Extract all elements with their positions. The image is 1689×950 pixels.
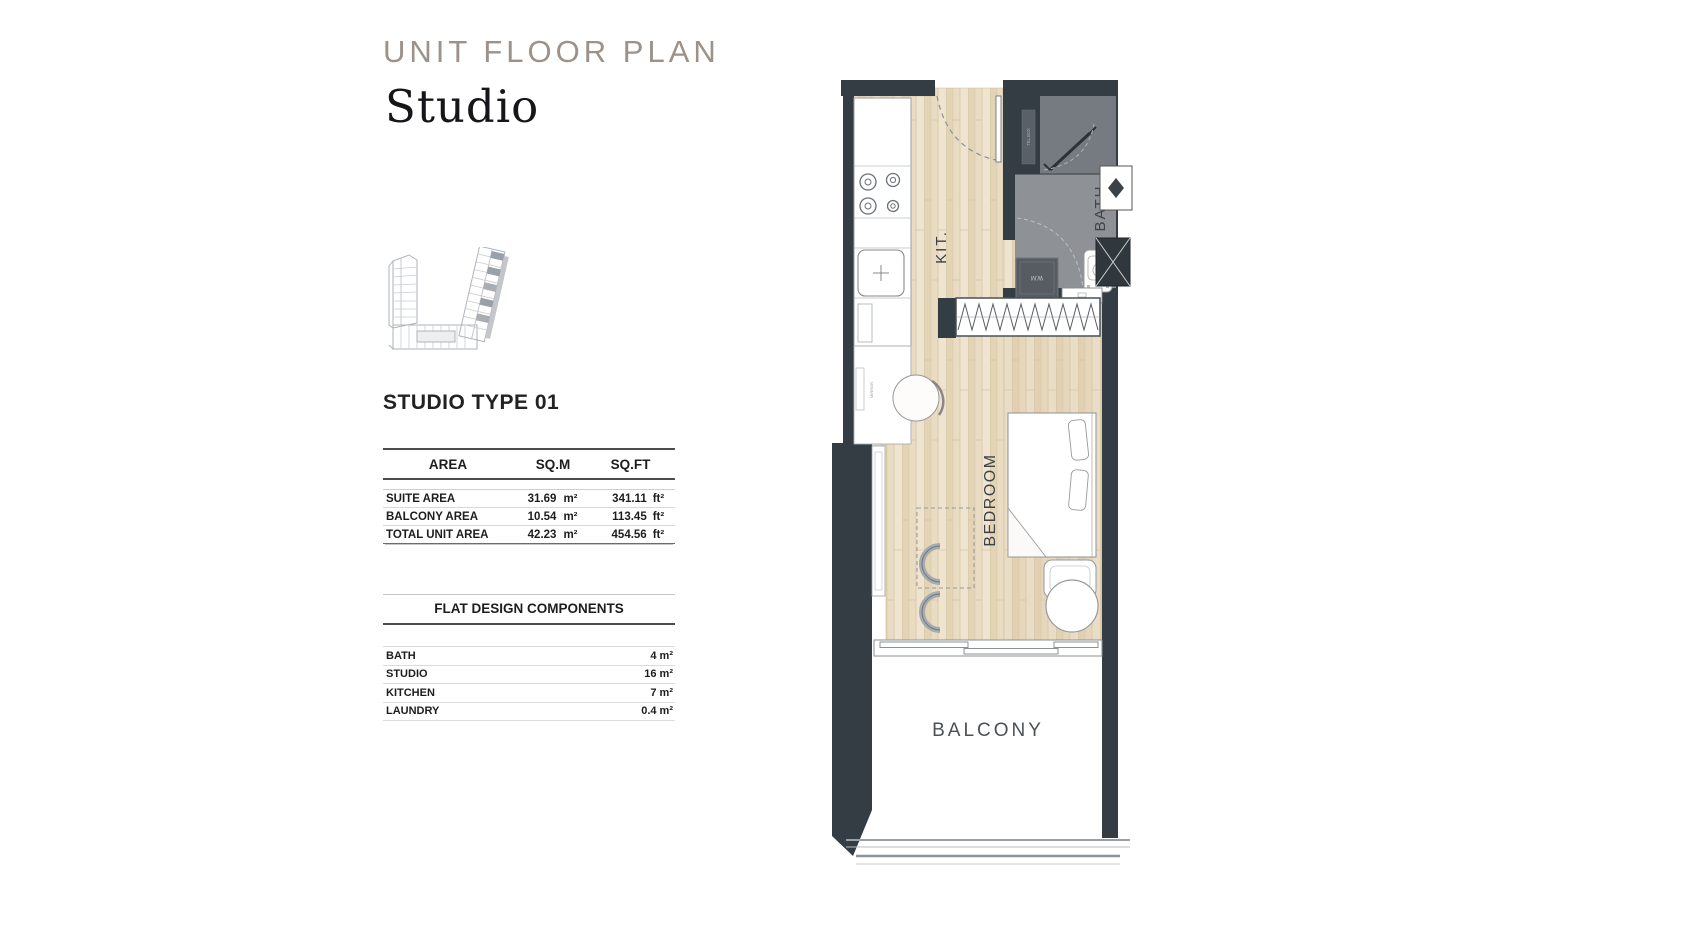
row-label: SUITE AREA bbox=[383, 493, 512, 505]
col-area: AREA bbox=[383, 457, 513, 472]
row-sqft: 113.45 bbox=[596, 511, 646, 523]
round-table bbox=[1046, 580, 1098, 632]
page-title: UNIT FLOOR PLAN bbox=[383, 34, 720, 70]
row-sqft: 341.11 bbox=[596, 493, 646, 505]
balcony-railing bbox=[846, 840, 1130, 864]
component-label: LAUNDRY bbox=[383, 705, 439, 717]
row-sqm-unit: m² bbox=[556, 493, 596, 505]
wall-top-right bbox=[1003, 80, 1118, 96]
component-label: STUDIO bbox=[383, 668, 428, 680]
list-item: STUDIO 16 m² bbox=[383, 666, 675, 685]
table-row: SUITE AREA 31.69 m² 341.11 ft² bbox=[383, 490, 675, 508]
row-sqft-unit: ft² bbox=[647, 529, 675, 541]
kitchen-sink bbox=[858, 250, 904, 296]
wall-left bbox=[843, 80, 854, 446]
balcony-label: BALCONY bbox=[932, 720, 1044, 741]
component-label: BATH bbox=[383, 650, 416, 662]
col-sqm: SQ.M bbox=[513, 457, 593, 472]
component-value: 0.4 m² bbox=[641, 705, 675, 717]
row-sqm-unit: m² bbox=[556, 529, 596, 541]
keyplan-right-wing bbox=[459, 247, 510, 343]
row-sqm: 10.54 bbox=[512, 511, 557, 523]
list-item: BATH 4 m² bbox=[383, 647, 675, 666]
col-sqft: SQ.FT bbox=[593, 457, 668, 472]
wall-right bbox=[1102, 300, 1118, 838]
washing-machine-label: W.M bbox=[1031, 274, 1043, 280]
floor-plan-svg: TEL.BOX BATH W.M bbox=[825, 55, 1140, 885]
unit-floor-plan-drawing: TEL.BOX BATH W.M bbox=[825, 55, 1140, 885]
wall-balcony-left bbox=[832, 443, 872, 856]
floor-plan-page: UNIT FLOOR PLAN Studio S bbox=[0, 0, 1689, 950]
duct-box bbox=[1100, 166, 1132, 210]
row-sqm-unit: m² bbox=[556, 511, 596, 523]
shower-room-floor bbox=[1040, 96, 1118, 174]
list-item: LAUNDRY 0.4 m² bbox=[383, 703, 675, 722]
component-value: 7 m² bbox=[650, 687, 675, 699]
pillow bbox=[1068, 469, 1088, 510]
tel-box-label: TEL.BOX bbox=[1026, 128, 1031, 146]
row-sqft: 454.56 bbox=[596, 529, 646, 541]
wardrobe bbox=[938, 298, 1100, 338]
row-sqft-unit: ft² bbox=[647, 493, 675, 505]
entrance-door-leaf bbox=[996, 96, 1001, 162]
row-sqm: 31.69 bbox=[512, 493, 557, 505]
list-item: KITCHEN 7 m² bbox=[383, 684, 675, 703]
flat-design-components: FLAT DESIGN COMPONENTS BATH 4 m² STUDIO … bbox=[383, 594, 675, 721]
building-key-plan bbox=[379, 247, 517, 363]
table-row: TOTAL UNIT AREA 42.23 m² 454.56 ft² bbox=[383, 526, 675, 544]
area-table-body: SUITE AREA 31.69 m² 341.11 ft² BALCONY A… bbox=[383, 489, 675, 544]
balcony-sliding-door bbox=[874, 640, 1102, 656]
bedroom-label: BEDROOM bbox=[982, 453, 999, 546]
components-body: BATH 4 m² STUDIO 16 m² KITCHEN 7 m² LAUN… bbox=[383, 646, 675, 721]
service-shaft bbox=[1096, 238, 1130, 286]
type-heading: STUDIO TYPE 01 bbox=[383, 391, 559, 415]
components-heading: FLAT DESIGN COMPONENTS bbox=[383, 594, 675, 625]
kitchen-counter bbox=[854, 98, 911, 346]
component-value: 4 m² bbox=[650, 650, 675, 662]
unit-type-subtitle: Studio bbox=[385, 80, 539, 133]
bed bbox=[1008, 413, 1096, 557]
table-row: BALCONY AREA 10.54 m² 113.45 ft² bbox=[383, 508, 675, 526]
wall-top-left bbox=[841, 80, 935, 96]
wall-bath-lower bbox=[1003, 174, 1015, 240]
row-label: TOTAL UNIT AREA bbox=[383, 529, 512, 541]
area-table-header: AREA SQ.M SQ.FT bbox=[383, 448, 675, 480]
kitchen-label: KIT. bbox=[933, 230, 950, 264]
mirror-label: MIRROR bbox=[869, 382, 874, 398]
pillow bbox=[1068, 419, 1089, 461]
row-sqm: 42.23 bbox=[512, 529, 557, 541]
row-sqft-unit: ft² bbox=[647, 511, 675, 523]
row-label: BALCONY AREA bbox=[383, 511, 512, 523]
component-value: 16 m² bbox=[644, 668, 675, 680]
component-label: KITCHEN bbox=[383, 687, 435, 699]
desk-shelf bbox=[872, 446, 885, 596]
area-table: AREA SQ.M SQ.FT SUITE AREA 31.69 m² 341.… bbox=[383, 448, 675, 544]
